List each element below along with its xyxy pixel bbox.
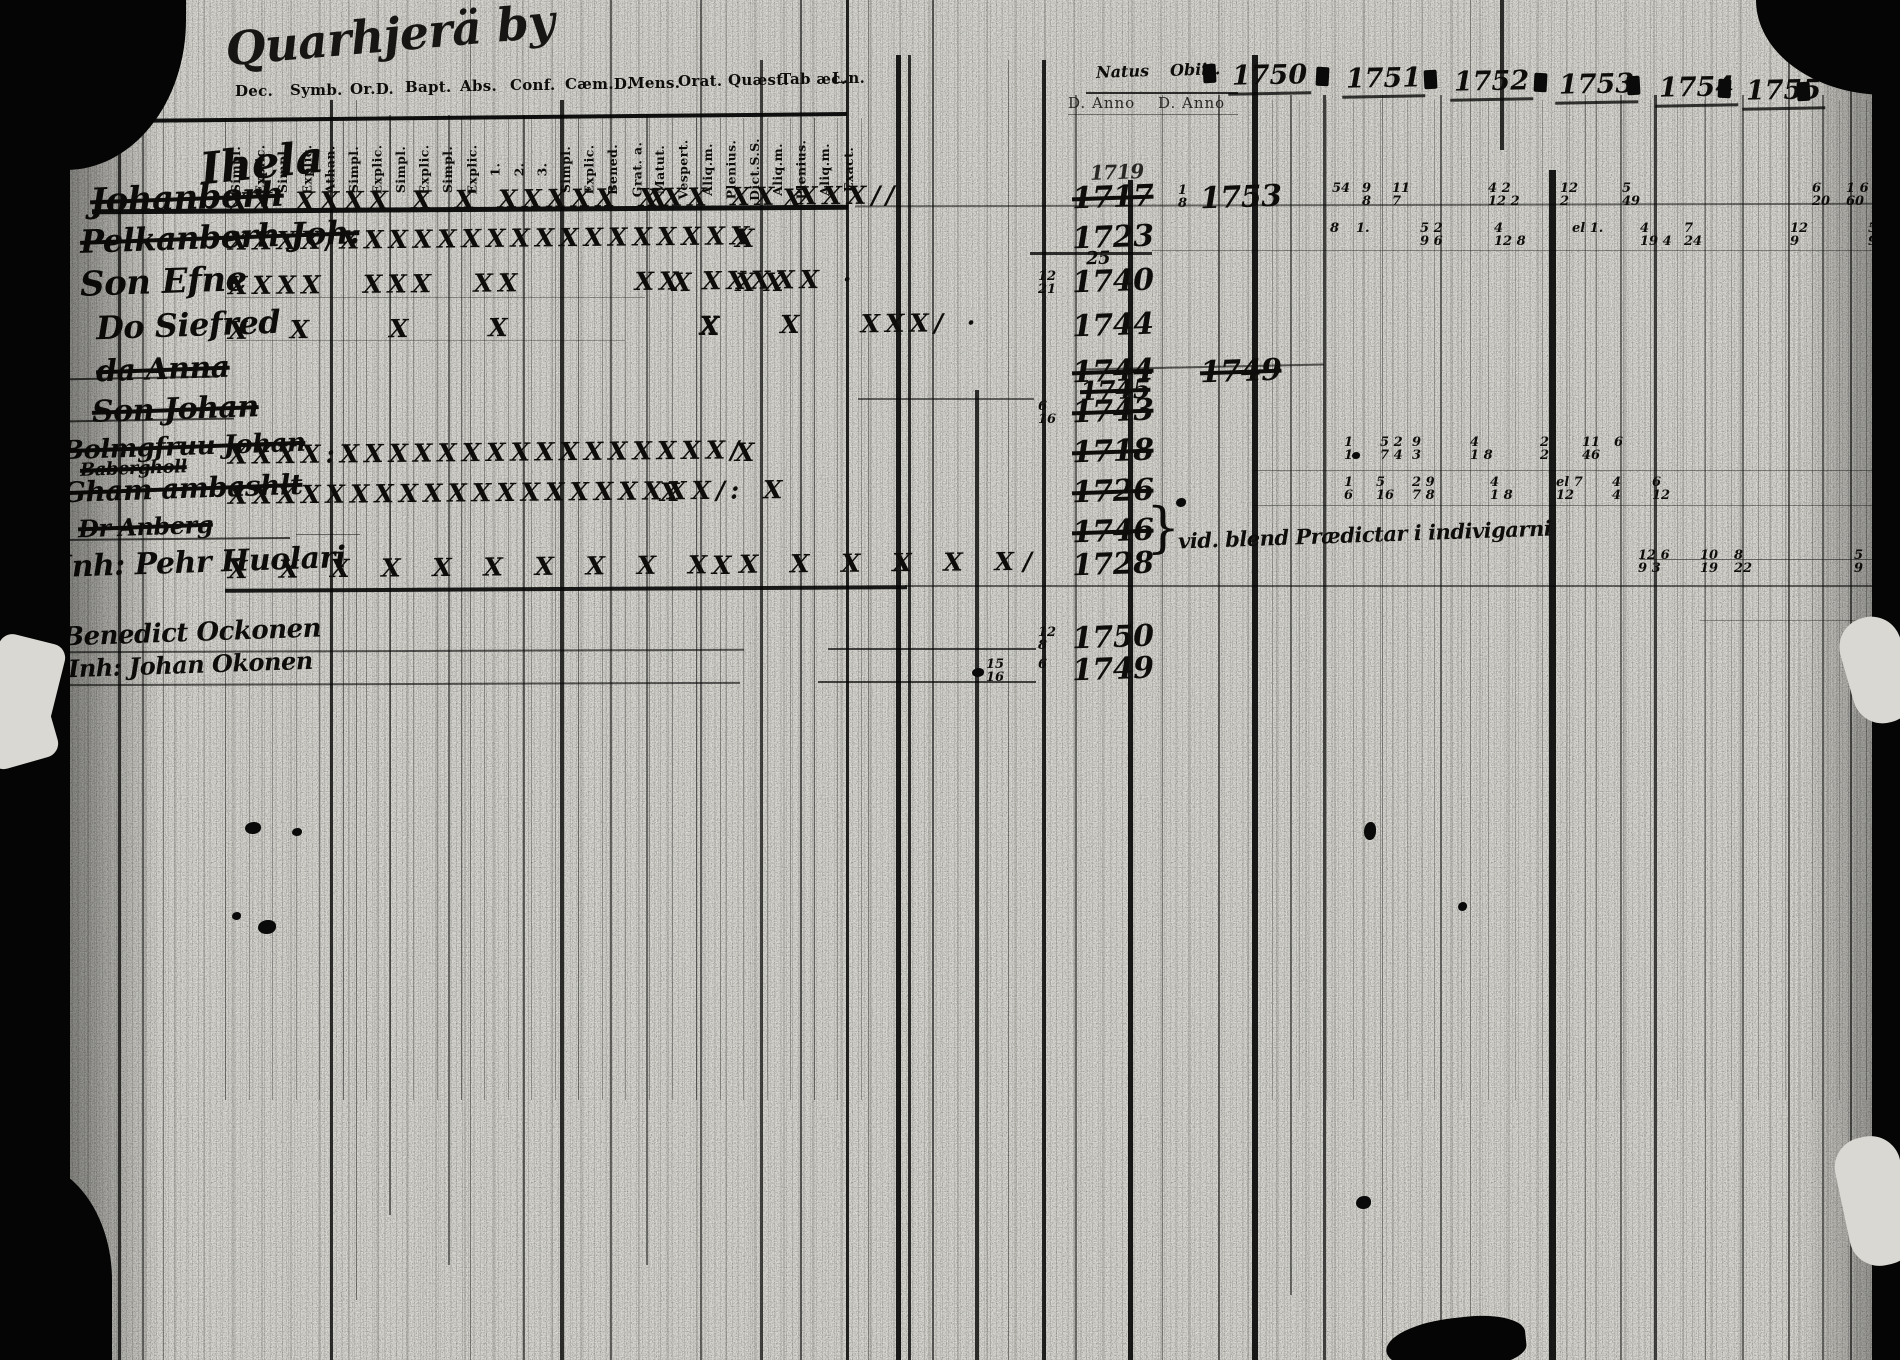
communion-date-note: el 712 xyxy=(1556,476,1583,502)
communion-date-note: 1146 xyxy=(1582,436,1600,462)
communion-date-note: 44 xyxy=(1612,476,1621,502)
natus-day: 6 xyxy=(1038,658,1047,671)
communion-date-bottom: 16 xyxy=(1376,489,1394,502)
scan-streak xyxy=(1585,95,1586,1360)
year-label: 1752 xyxy=(1450,65,1534,101)
obiit-month: 8 xyxy=(1178,197,1187,210)
scan-streak xyxy=(1252,55,1258,1360)
natus-year: 1717 xyxy=(1071,179,1154,217)
communion-date-note: 41 8 xyxy=(1490,476,1513,502)
scan-streak xyxy=(1654,95,1657,1360)
communion-date-bottom: 2 xyxy=(1560,195,1578,208)
ink-blob xyxy=(1356,1196,1371,1209)
natus-year: 1740 xyxy=(1071,263,1154,301)
communion-date-note: 2 97 8 xyxy=(1412,476,1435,502)
scan-streak xyxy=(932,0,934,1360)
natus-month: 21 xyxy=(1038,283,1056,296)
communion-marks-tail: X xyxy=(712,551,740,580)
natus-month: 16 xyxy=(1038,413,1056,426)
ledger-line xyxy=(296,534,360,535)
table-rule xyxy=(296,118,297,1100)
natus-year: 1718 xyxy=(1071,433,1154,471)
year-label: 1755 xyxy=(1742,74,1826,110)
communion-date-bottom: 7 xyxy=(1392,195,1410,208)
communion-date-note: 11 xyxy=(1344,436,1353,462)
table-rule xyxy=(508,118,509,1100)
communion-marks: X X X X X X X X X X X X X X X X/ xyxy=(228,547,1041,585)
communion-date-bottom: 12 xyxy=(1652,489,1670,502)
communion-date-bottom: 9 3 xyxy=(1638,562,1670,575)
ink-blob xyxy=(1352,452,1360,459)
natus-margin-day-bottom: 16 xyxy=(986,671,1004,684)
scan-streak xyxy=(896,55,901,1360)
communion-marks-tail: X xyxy=(735,438,763,467)
table-rule xyxy=(555,118,556,1100)
scan-streak xyxy=(760,60,763,1360)
communion-marks: XXXX/XXXXXXXXXXXXXXXXX xyxy=(228,221,755,256)
scan-streak xyxy=(1218,95,1220,1360)
scan-streak xyxy=(523,115,525,1360)
scan-streak xyxy=(1162,95,1163,1360)
communion-date-bottom: 2 xyxy=(1540,449,1549,462)
communion-date-note: 1 660 xyxy=(1846,182,1869,208)
scan-streak xyxy=(908,55,911,1360)
communion-date-bottom: 12 8 xyxy=(1494,235,1526,248)
communion-marks-tail: X X xyxy=(648,184,811,213)
table-rule xyxy=(366,118,367,1100)
group-header: Cæm.D. xyxy=(565,75,632,93)
ink-blob xyxy=(972,668,984,677)
row-name: Dr Anberg xyxy=(78,510,214,544)
table-rule xyxy=(437,118,438,1100)
communion-date-bottom: 4 xyxy=(1612,489,1621,502)
communion-date-bottom: 49 xyxy=(1622,195,1640,208)
communion-date-note: 549 xyxy=(1622,182,1640,208)
row-name: Son Johan xyxy=(91,389,259,430)
group-header: Mens. xyxy=(628,74,680,92)
communion-date-note: 16 xyxy=(1344,476,1353,502)
communion-date-note: 419 4 xyxy=(1640,222,1672,248)
scan-streak xyxy=(1008,60,1009,1360)
communion-date-bottom: 9 xyxy=(1854,562,1863,575)
communion-date-note: 5 27 4 xyxy=(1380,436,1403,462)
table-rule xyxy=(249,118,250,1100)
obiit-year: 1749 xyxy=(1199,353,1282,391)
table-rule xyxy=(484,118,485,1100)
table-rule xyxy=(602,118,603,1100)
obiit-day-month: 18 xyxy=(1178,184,1187,210)
group-header: Orat. xyxy=(678,72,722,90)
ink-blob xyxy=(1364,822,1376,840)
communion-date-note: 1. xyxy=(1356,222,1370,235)
scan-streak xyxy=(1788,0,1790,1360)
group-header: Or.D. xyxy=(350,80,394,98)
communion-date-note: 59 xyxy=(1854,549,1863,575)
communion-date-note: 412 8 xyxy=(1494,222,1526,248)
communion-date-note: 41 8 xyxy=(1470,436,1493,462)
communion-marks-tail: X xyxy=(735,224,763,253)
group-header: Bapt. xyxy=(405,78,452,96)
communion-date-bottom: 20 xyxy=(1812,195,1830,208)
natus-year: 1744 xyxy=(1071,307,1154,345)
natus-label: Natus xyxy=(1096,61,1150,82)
natus-month: 8 xyxy=(1038,639,1056,652)
communion-date-note: 620 xyxy=(1812,182,1830,208)
scan-streak xyxy=(1470,0,1471,1360)
table-rule xyxy=(696,118,697,1100)
table-rule xyxy=(672,118,673,1100)
group-header: Dec. xyxy=(235,82,273,100)
group-header: Symb. xyxy=(290,81,343,99)
scan-streak xyxy=(1323,95,1326,1360)
right-page-clip-notch xyxy=(1832,610,1900,731)
communion-date-bottom: 8 xyxy=(1362,195,1371,208)
row-name: Son Efne xyxy=(79,259,247,305)
communion-date-bottom: 3 xyxy=(1412,449,1421,462)
year-separator-blob xyxy=(1627,76,1641,96)
scan-streak xyxy=(975,390,979,1360)
sub-header-label: 3. xyxy=(535,162,550,176)
communion-date-top: 1. xyxy=(1356,222,1370,235)
ink-blob xyxy=(258,920,276,934)
communion-date-top: 54 xyxy=(1332,182,1350,195)
communion-date-note: 6 xyxy=(1614,436,1623,449)
table-rule xyxy=(649,118,650,1100)
natus-year: 1743 xyxy=(1071,393,1154,431)
communion-date-note: 822 xyxy=(1734,549,1752,575)
year-label: 1751 xyxy=(1342,62,1426,98)
obiit-year: 1753 xyxy=(1199,179,1282,217)
communion-date-note: 12 69 3 xyxy=(1638,549,1670,575)
scan-streak xyxy=(1290,95,1292,1295)
communion-date-bottom: 9 xyxy=(1790,235,1808,248)
communion-marks-tail: X xyxy=(660,478,688,507)
scan-streak xyxy=(1549,170,1556,1360)
table-rule xyxy=(319,118,320,1100)
communion-date-bottom: 22 xyxy=(1734,562,1752,575)
year-separator-blob xyxy=(1797,82,1811,102)
communion-marks: XXXXXXXXXXXXXXXXXXXX/: X xyxy=(228,475,788,510)
right-page-clip-notch-2 xyxy=(1829,1131,1900,1272)
communion-date-note: 4 212 2 xyxy=(1488,182,1520,208)
natus-year: 1749 xyxy=(1071,651,1154,689)
table-rule xyxy=(343,118,344,1100)
communion-date-note: 98 xyxy=(1362,182,1371,208)
communion-date-bottom: 6 xyxy=(1344,489,1353,502)
communion-date-note: 122 xyxy=(1560,182,1578,208)
natus-day-month: 128 xyxy=(1038,626,1056,652)
scan-streak xyxy=(1382,95,1383,1360)
communion-date-bottom: 24 xyxy=(1684,235,1702,248)
table-rule xyxy=(272,118,273,1100)
group-header: Abs. xyxy=(460,77,497,95)
communion-date-note: 22 xyxy=(1540,436,1549,462)
communion-date-bottom: 1 8 xyxy=(1470,449,1493,462)
communion-date-bottom: 19 4 xyxy=(1640,235,1672,248)
communion-date-bottom: 46 xyxy=(1582,449,1600,462)
sub-header-label: 1. xyxy=(488,162,503,176)
communion-date-note: 54 xyxy=(1332,182,1350,195)
communion-date-top: el 1. xyxy=(1572,222,1603,235)
communion-date-bottom: 9 6 xyxy=(1420,235,1443,248)
year-label: 1753 xyxy=(1555,68,1639,104)
communion-marks-tail: X XX xyxy=(672,268,793,297)
communion-date-note: 724 xyxy=(1684,222,1702,248)
communion-date-bottom: 19 xyxy=(1700,562,1718,575)
communion-date-note: 117 xyxy=(1392,182,1410,208)
scan-streak xyxy=(1042,60,1046,1360)
document-scan: Quarhjerä by Dec.Symb.Or.D.Bapt.Abs.Conf… xyxy=(0,0,1900,1360)
year-separator-blob xyxy=(1424,70,1438,90)
ink-blob xyxy=(1458,902,1467,911)
left-edge-bottom-corner xyxy=(0,1160,112,1360)
scan-streak xyxy=(1705,95,1706,1360)
communion-marks-tail: X xyxy=(700,312,728,341)
year-separator-blob xyxy=(1534,73,1548,93)
ink-blob xyxy=(292,828,302,836)
natus-year: 1728 xyxy=(1071,546,1154,584)
margin-note: vid. blend Prædictar i indivigarni xyxy=(1178,515,1552,553)
natus-year: 1723 xyxy=(1071,219,1154,257)
ink-blob xyxy=(232,912,241,920)
ledger-line xyxy=(1068,114,1238,115)
left-edge-top-corner xyxy=(0,0,186,170)
ledger-line xyxy=(225,585,907,593)
communion-date-bottom: 7 4 xyxy=(1380,449,1403,462)
scan-streak xyxy=(1742,95,1744,1360)
communion-date-note: 8 xyxy=(1330,222,1339,235)
anno-label-natus: D. Anno xyxy=(1068,94,1135,112)
communion-date-note: 516 xyxy=(1376,476,1394,502)
ledger-line xyxy=(905,585,1900,587)
year-separator-blob xyxy=(1203,64,1217,84)
ink-blob xyxy=(1176,498,1186,507)
bottom-ink-blot xyxy=(1384,1311,1529,1360)
natus-day-month: 1221 xyxy=(1038,270,1056,296)
ledger-line xyxy=(1253,505,1900,506)
communion-date-note: el 1. xyxy=(1572,222,1603,235)
communion-date-note: 93 xyxy=(1412,436,1421,462)
group-header: L.n. xyxy=(832,69,865,87)
scan-streak xyxy=(1620,95,1622,1360)
communion-date-bottom: 7 8 xyxy=(1412,489,1435,502)
scan-streak xyxy=(1440,95,1442,1360)
scan-streak xyxy=(1822,95,1824,1360)
anno-label-obiit: D. Anno xyxy=(1158,94,1225,112)
natus-day-month: 6 xyxy=(1038,658,1047,671)
row-name: da Anna xyxy=(95,350,230,390)
table-rule xyxy=(861,118,862,1100)
ink-blob xyxy=(245,822,261,834)
year-separator-blob xyxy=(1718,79,1732,99)
communion-date-note: 5 29 6 xyxy=(1420,222,1443,248)
communion-date-top: 8 xyxy=(1330,222,1339,235)
communion-marks: XXXX:XXXXXXXXXXXXXXXX/ xyxy=(228,435,745,469)
communion-date-top: 6 xyxy=(1614,436,1623,449)
communion-date-note: 129 xyxy=(1790,222,1808,248)
ledger-line xyxy=(1253,470,1900,471)
table-rule xyxy=(625,118,626,1100)
natus-year: 1746 xyxy=(1071,513,1154,551)
communion-date-bottom: 12 xyxy=(1556,489,1583,502)
year-separator-blob xyxy=(1316,67,1330,87)
communion-date-bottom: 1 8 xyxy=(1490,489,1513,502)
communion-date-note: 1019 xyxy=(1700,549,1718,575)
table-rule xyxy=(578,118,579,1100)
table-rule xyxy=(531,118,532,1100)
natus-margin-day: 1516 xyxy=(986,658,1004,684)
communion-date-bottom: 12 2 xyxy=(1488,195,1520,208)
group-header: Conf. xyxy=(510,76,556,94)
year-label: 1750 xyxy=(1228,59,1312,95)
communion-date-note: 612 xyxy=(1652,476,1670,502)
table-rule xyxy=(413,118,414,1100)
sub-header-label: 2. xyxy=(511,162,526,176)
natus-year: 1726 xyxy=(1071,473,1154,511)
communion-date-bottom: 60 xyxy=(1846,195,1869,208)
natus-day-month: 616 xyxy=(1038,400,1056,426)
page-title: Quarhjerä by xyxy=(223,0,556,76)
table-rule xyxy=(461,118,462,1100)
